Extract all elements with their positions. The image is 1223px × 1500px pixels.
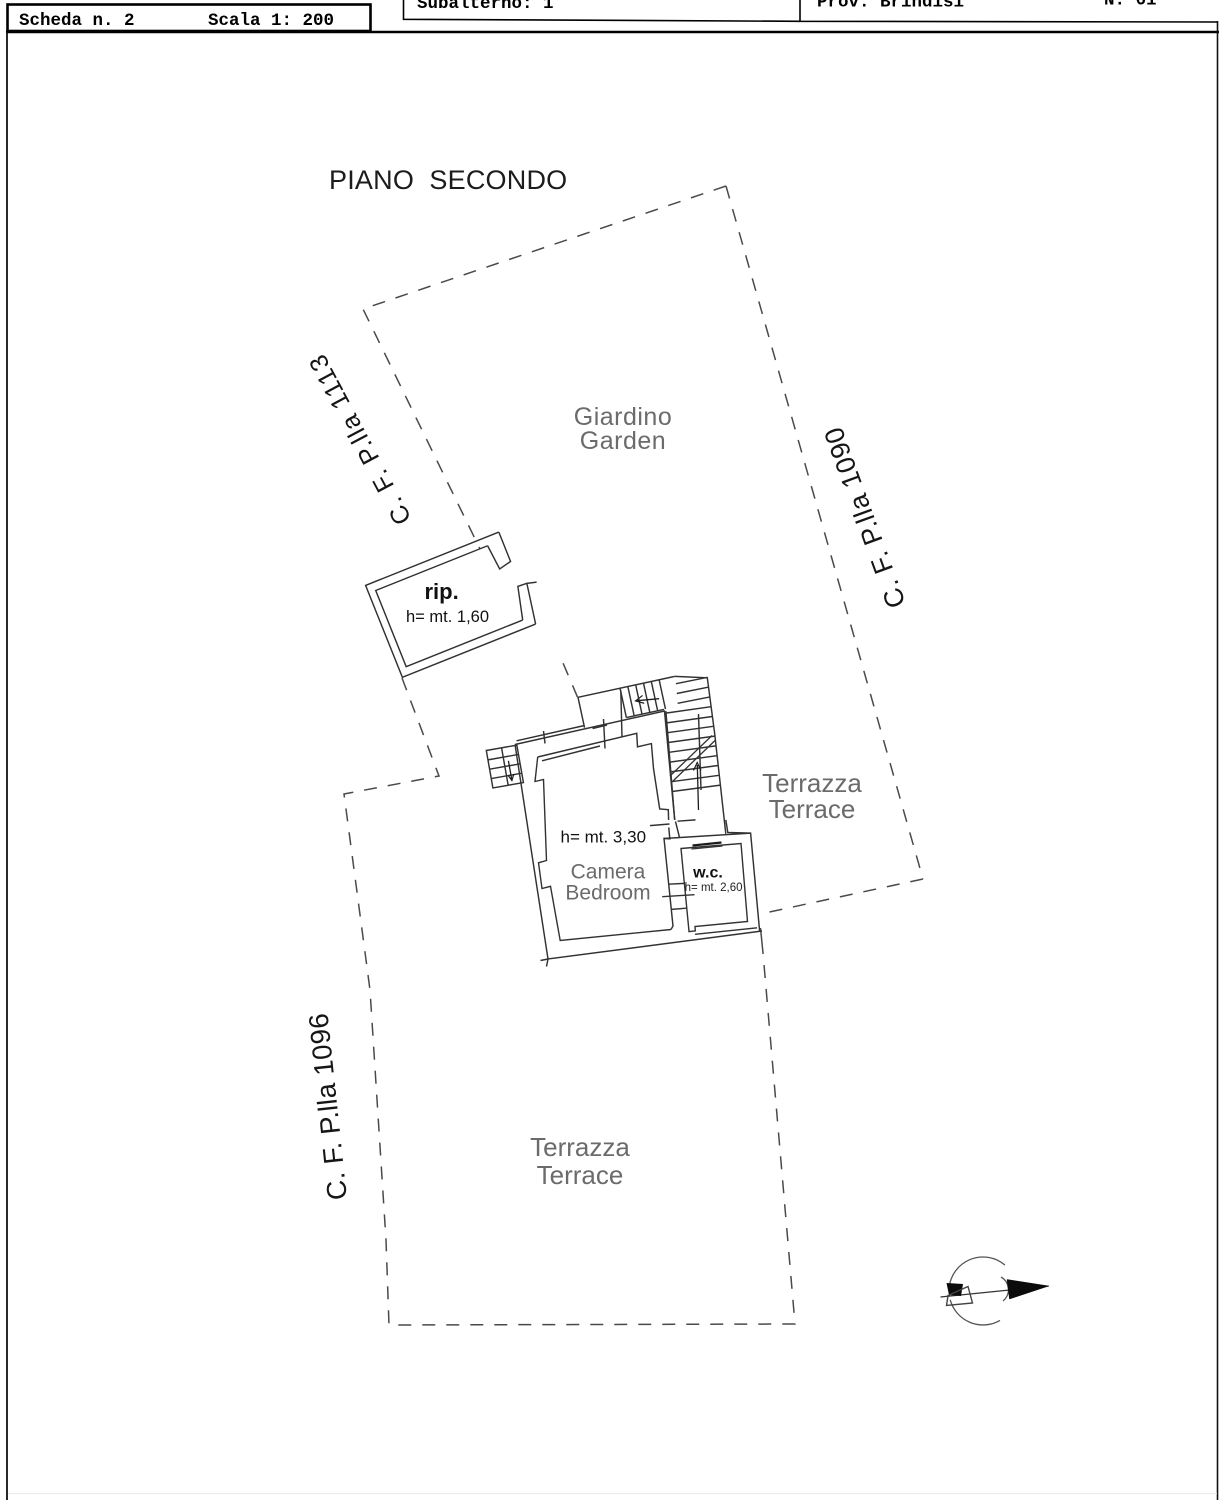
svg-text:w.c.: w.c. [692,865,723,882]
svg-text:Camera: Camera [571,861,646,884]
svg-text:N. 61: N. 61 [1104,0,1157,11]
svg-text:Terrazza: Terrazza [530,1132,630,1162]
svg-text:h= mt. 3,30: h= mt. 3,30 [561,828,647,847]
svg-text:Terrace: Terrace [537,1160,624,1190]
svg-text:Scala 1: 200: Scala 1: 200 [208,11,334,31]
svg-text:C. F. P.lla 1113: C. F. P.lla 1113 [303,349,417,530]
svg-text:h= mt. 1,60: h= mt. 1,60 [406,608,489,626]
svg-text:h= mt. 2,60: h= mt. 2,60 [685,882,743,894]
svg-text:Bedroom: Bedroom [565,882,650,905]
svg-text:rip.: rip. [425,579,459,604]
svg-text:Terrace: Terrace [769,794,856,824]
svg-text:C. F. P.lla 1090: C. F. P.lla 1090 [818,423,911,613]
svg-text:PIANO SECONDO: PIANO SECONDO [329,165,567,195]
svg-text:Subalterno: 1: Subalterno: 1 [417,0,554,14]
svg-text:C. F. P.lla 1096: C. F. P.lla 1096 [303,1012,353,1202]
svg-text:Garden: Garden [580,427,666,455]
svg-text:Prov. Brindisi: Prov. Brindisi [817,0,964,13]
svg-text:Scheda n. 2: Scheda n. 2 [19,11,135,31]
